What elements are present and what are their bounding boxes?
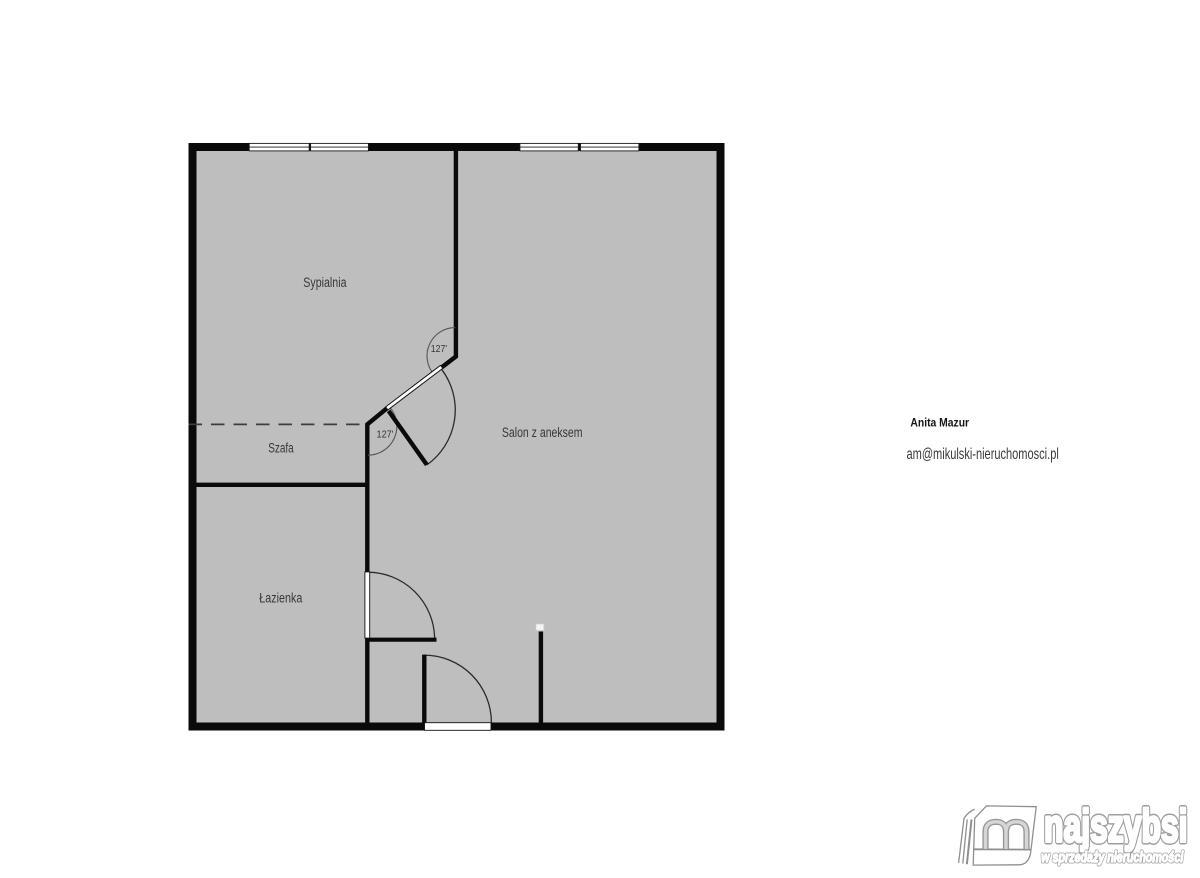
svg-text:najszybsi: najszybsi: [1044, 800, 1188, 852]
svg-text:127': 127': [377, 429, 394, 441]
svg-text:Łazienka: Łazienka: [259, 590, 302, 605]
svg-text:127': 127': [431, 343, 447, 355]
svg-text:am@mikulski-nieruchomosci.pl: am@mikulski-nieruchomosci.pl: [907, 446, 1059, 463]
svg-text:Anita Mazur: Anita Mazur: [910, 416, 969, 430]
svg-text:Sypialnia: Sypialnia: [303, 275, 347, 290]
svg-text:Salon z aneksem: Salon z aneksem: [502, 425, 583, 440]
svg-text:Szafa: Szafa: [268, 441, 294, 456]
svg-text:w sprzedaży nieruchomości: w sprzedaży nieruchomości: [1041, 850, 1184, 866]
